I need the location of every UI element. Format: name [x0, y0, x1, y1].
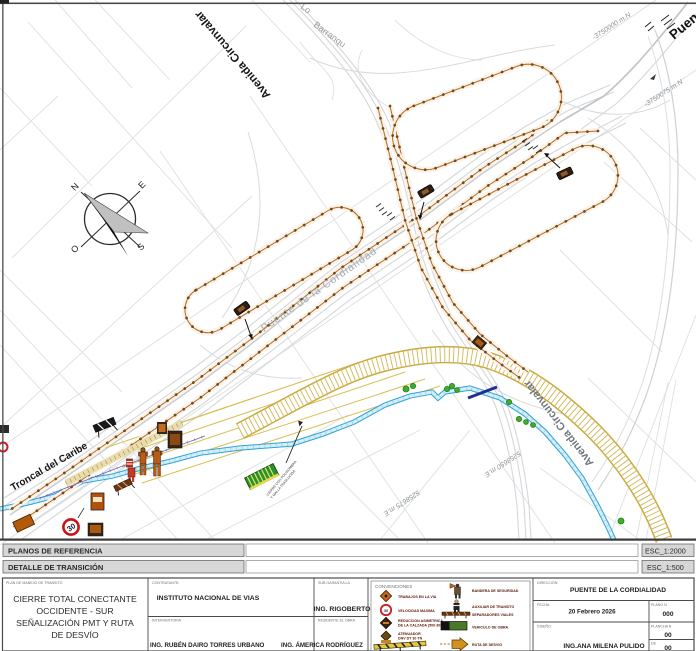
svg-text:SEPARADORES VIALES: SEPARADORES VIALES [472, 613, 514, 617]
svg-text:RUTA DE DESVIO: RUTA DE DESVIO [472, 643, 502, 647]
svg-text:ING.ANA MILENA PULIDO: ING.ANA MILENA PULIDO [563, 643, 644, 650]
svg-text:00: 00 [664, 645, 672, 651]
svg-text:CIERRE TOTAL CONECTANTE: CIERRE TOTAL CONECTANTE [13, 594, 137, 604]
svg-text:30: 30 [384, 609, 388, 613]
svg-text:BANDERA DE SEGURIDAD: BANDERA DE SEGURIDAD [472, 589, 519, 593]
svg-text:INTERVENTORIA: INTERVENTORIA [152, 619, 182, 623]
svg-text:000: 000 [662, 611, 673, 618]
svg-text:DISEÑO:: DISEÑO: [537, 624, 552, 629]
svg-text:ATENUADOR: ATENUADOR [398, 632, 421, 636]
svg-text:DE DESVÍO: DE DESVÍO [51, 630, 99, 640]
svg-text:VELOCIDAD MAXIMA: VELOCIDAD MAXIMA [398, 609, 435, 613]
svg-text:INSTITUTO NACIONAL DE VIAS: INSTITUTO NACIONAL DE VIAS [157, 595, 260, 602]
svg-text:PLANO N: PLANO N [651, 603, 667, 607]
svg-text:VEHICULO DE OBRA: VEHICULO DE OBRA [472, 626, 509, 630]
svg-text:ING. RIGOBERTO: ING. RIGOBERTO [314, 606, 371, 613]
svg-text:ING. RUBÉN DAIRO TORRES URBANO: ING. RUBÉN DAIRO TORRES URBANO [150, 641, 265, 649]
svg-text:PLAN DE MANEJO DE TRANSITO: PLAN DE MANEJO DE TRANSITO [6, 581, 63, 585]
svg-text:DIRECCIÓN:: DIRECCIÓN: [537, 580, 558, 585]
svg-text:REDUCCION ASIMETRICA: REDUCCION ASIMETRICA [398, 619, 443, 623]
svg-text:DE: DE [651, 642, 657, 646]
svg-text:OCCIDENTE - SUR: OCCIDENTE - SUR [36, 606, 113, 616]
svg-text:20 Febrero 2026: 20 Febrero 2026 [568, 609, 616, 616]
svg-text:FECHA:: FECHA: [537, 603, 550, 607]
svg-text:TRABAJOS EN LA VIA: TRABAJOS EN LA VIA [398, 595, 437, 599]
svg-text:SEÑALIZACIÓN PMT Y RUTA: SEÑALIZACIÓN PMT Y RUTA [16, 618, 134, 628]
svg-text:ING. ÁMERICA RODRÍGUEZ: ING. ÁMERICA RODRÍGUEZ [281, 641, 363, 649]
svg-text:PUENTE DE LA CORDIALIDAD: PUENTE DE LA CORDIALIDAD [570, 587, 666, 594]
svg-text:DNV DT 30 TN: DNV DT 30 TN [398, 637, 423, 641]
svg-text:PLANOS DE REFERENCIA: PLANOS DE REFERENCIA [8, 547, 103, 556]
svg-text:AUXILIAR DE TRANSITO: AUXILIAR DE TRANSITO [472, 605, 514, 609]
svg-text:DETALLE DE TRANSICIÓN: DETALLE DE TRANSICIÓN [8, 563, 103, 572]
svg-text:ESC_1:500: ESC_1:500 [647, 563, 684, 572]
svg-text:RESIDENTE EL OBRA: RESIDENTE EL OBRA [318, 619, 356, 623]
svg-text:PLANCHA N: PLANCHA N [651, 625, 672, 629]
svg-text:DE LA CALZADA (500-300): DE LA CALZADA (500-300) [398, 624, 444, 628]
svg-text:CONTRATANTE:: CONTRATANTE: [152, 581, 179, 585]
svg-text:CONVENCIONES: CONVENCIONES [375, 584, 412, 589]
svg-text:ESC_1:2000: ESC_1:2000 [645, 547, 686, 556]
svg-text:00: 00 [664, 632, 672, 639]
svg-text:SUB GARANTIA LA: SUB GARANTIA LA [318, 581, 351, 585]
